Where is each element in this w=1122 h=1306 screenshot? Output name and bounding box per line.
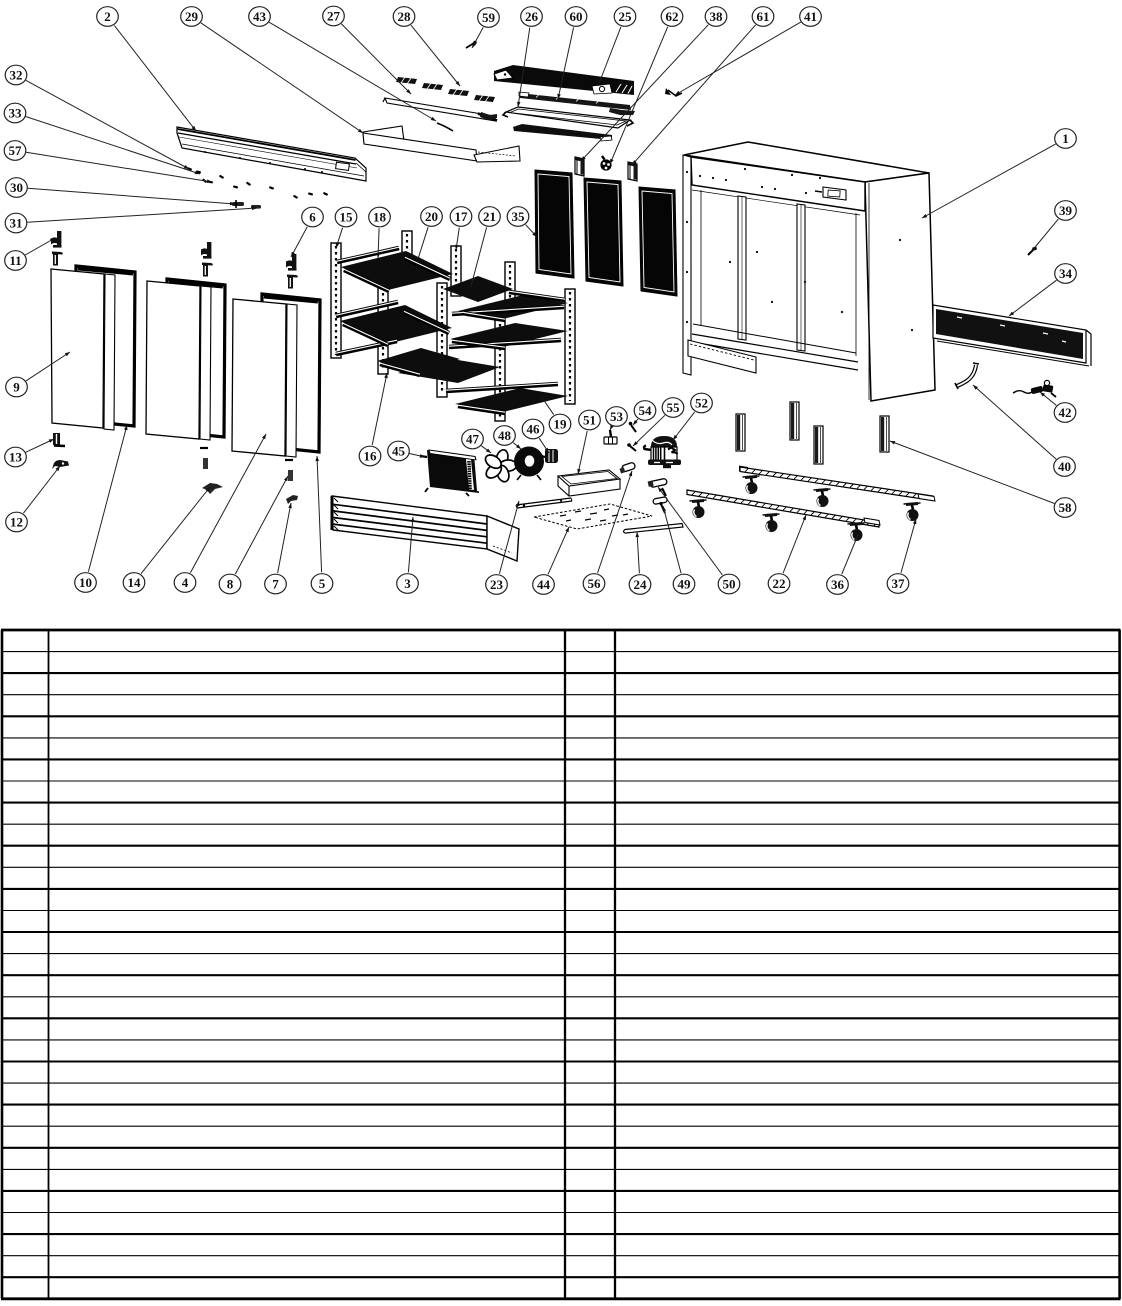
svg-text:27: 27	[327, 9, 341, 24]
svg-text:43: 43	[253, 9, 267, 24]
svg-text:54: 54	[639, 403, 653, 418]
svg-text:55: 55	[667, 400, 681, 415]
svg-text:51: 51	[583, 413, 596, 428]
svg-text:21: 21	[483, 209, 496, 224]
svg-text:36: 36	[831, 577, 845, 592]
svg-text:9: 9	[13, 380, 20, 395]
svg-text:8: 8	[227, 577, 234, 592]
svg-text:44: 44	[537, 577, 551, 592]
svg-text:17: 17	[455, 209, 469, 224]
svg-text:50: 50	[723, 577, 736, 592]
svg-text:5: 5	[319, 576, 326, 591]
svg-text:59: 59	[482, 10, 496, 25]
svg-text:25: 25	[619, 9, 633, 24]
svg-text:58: 58	[1059, 500, 1073, 515]
svg-text:40: 40	[1058, 459, 1071, 474]
svg-text:34: 34	[1059, 266, 1073, 281]
svg-text:57: 57	[9, 143, 23, 158]
svg-text:37: 37	[892, 576, 906, 591]
svg-text:38: 38	[710, 9, 724, 24]
svg-text:3: 3	[404, 576, 411, 591]
svg-text:47: 47	[466, 432, 480, 447]
svg-text:23: 23	[490, 577, 504, 592]
svg-text:14: 14	[128, 575, 142, 590]
svg-text:39: 39	[1059, 203, 1073, 218]
svg-text:29: 29	[185, 9, 199, 24]
svg-text:11: 11	[9, 253, 21, 268]
svg-text:7: 7	[272, 577, 279, 592]
svg-text:18: 18	[373, 210, 387, 225]
svg-text:46: 46	[527, 422, 541, 437]
svg-text:28: 28	[398, 9, 412, 24]
svg-text:53: 53	[610, 409, 624, 424]
svg-text:4: 4	[182, 575, 189, 590]
svg-text:49: 49	[678, 577, 692, 592]
svg-text:62: 62	[666, 9, 679, 24]
svg-text:35: 35	[512, 209, 526, 224]
svg-text:19: 19	[554, 417, 568, 432]
svg-text:56: 56	[588, 576, 602, 591]
svg-text:24: 24	[634, 577, 648, 592]
svg-text:33: 33	[9, 106, 23, 121]
svg-text:10: 10	[79, 575, 92, 590]
svg-text:2: 2	[104, 9, 111, 24]
svg-text:45: 45	[392, 444, 406, 459]
svg-text:61: 61	[757, 9, 770, 24]
svg-text:15: 15	[340, 210, 354, 225]
svg-text:22: 22	[773, 576, 786, 591]
svg-text:30: 30	[10, 180, 23, 195]
svg-text:41: 41	[804, 9, 817, 24]
svg-text:42: 42	[1059, 405, 1072, 420]
svg-text:52: 52	[695, 396, 708, 411]
svg-text:16: 16	[364, 449, 378, 464]
svg-text:32: 32	[10, 68, 23, 83]
svg-text:12: 12	[10, 515, 23, 530]
svg-text:31: 31	[10, 216, 23, 231]
svg-text:13: 13	[9, 450, 23, 465]
svg-text:26: 26	[525, 9, 539, 24]
svg-text:20: 20	[425, 209, 438, 224]
svg-text:48: 48	[498, 428, 512, 443]
svg-text:6: 6	[309, 210, 316, 225]
svg-text:60: 60	[570, 9, 583, 24]
svg-text:1: 1	[1062, 131, 1069, 146]
